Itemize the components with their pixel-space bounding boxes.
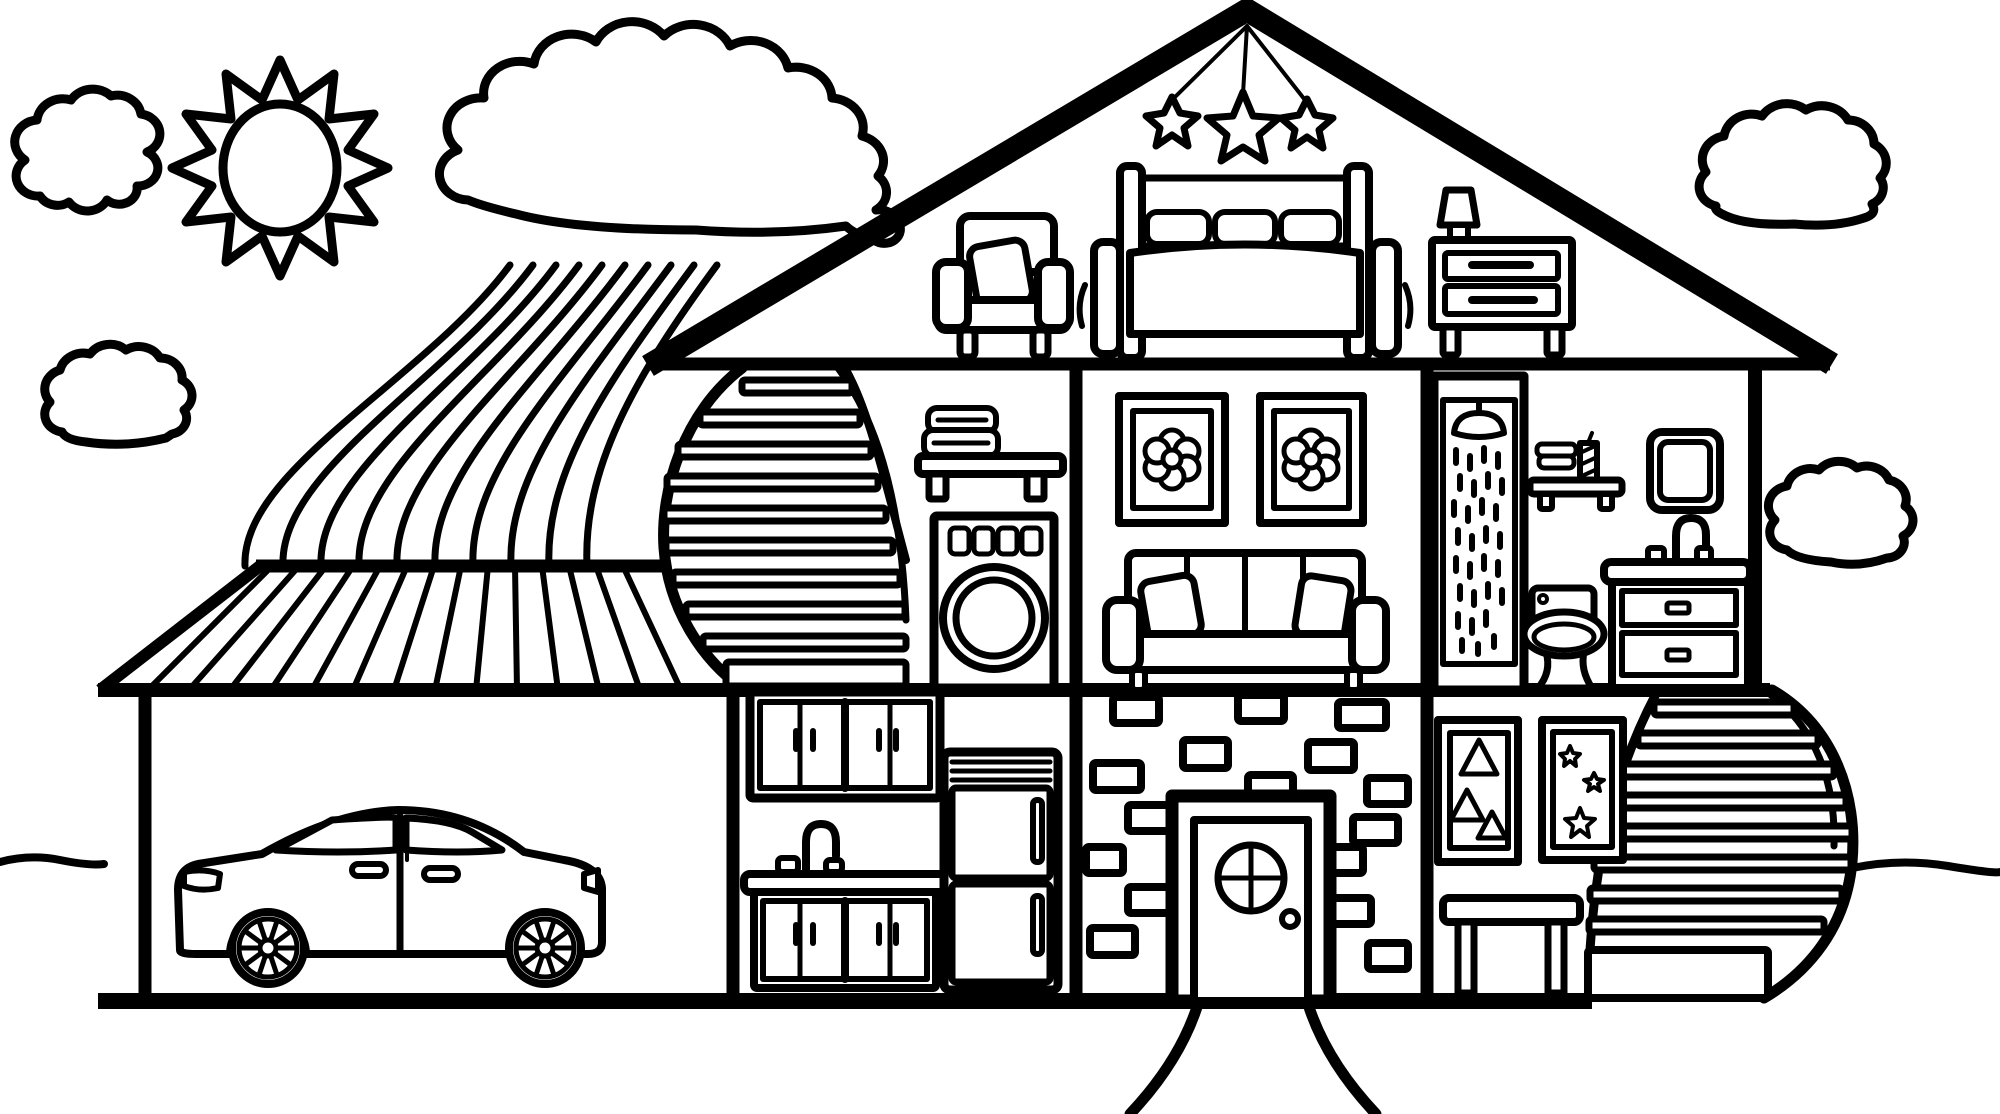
toilet — [1524, 588, 1604, 688]
flower-icon — [1145, 430, 1199, 489]
star-icon — [1146, 97, 1198, 146]
kitchen-sink — [744, 824, 946, 892]
star-icon — [1207, 92, 1279, 161]
car-wheel — [509, 912, 581, 984]
living-room — [1106, 396, 1386, 690]
armchair — [936, 216, 1070, 357]
bed — [1080, 166, 1411, 358]
cloud-icon-small-left — [15, 89, 160, 211]
side-table — [1443, 898, 1580, 993]
nightstand — [1432, 190, 1572, 355]
car-taillight — [584, 870, 598, 892]
garage-roof — [100, 566, 742, 690]
garage — [178, 810, 602, 984]
entry-room — [1086, 695, 1408, 1001]
flower-picture-1 — [1119, 396, 1225, 523]
ground-line-right — [1852, 862, 2000, 872]
walkway — [1130, 1004, 1376, 1114]
laundry-room — [918, 408, 1063, 688]
staircase-left — [664, 368, 910, 688]
attic-bedroom — [936, 26, 1572, 358]
kitchen — [744, 692, 1058, 990]
bed-pillow — [1281, 212, 1339, 244]
car — [178, 810, 602, 984]
laundry-shelf — [918, 408, 1063, 499]
triangle-picture — [1438, 720, 1518, 862]
cloud-icon-mid-right — [1768, 461, 1913, 564]
rainbow — [245, 265, 717, 566]
bathroom — [1434, 376, 1750, 690]
flower-icon — [1284, 430, 1338, 489]
shower-head-icon — [1454, 413, 1504, 437]
coloring-page — [0, 0, 2000, 1114]
car-headlight — [184, 870, 220, 889]
car-door-handle — [424, 868, 458, 880]
mirror — [1650, 432, 1720, 510]
bed-mattress — [1130, 245, 1360, 335]
staircase-right — [1588, 690, 1853, 998]
flower-picture-2 — [1260, 396, 1363, 523]
car-door-handle — [352, 864, 386, 876]
cloud-icon-mid-left — [45, 344, 192, 444]
lower-cabinets — [754, 892, 936, 988]
sun-icon — [172, 60, 388, 276]
bed-pillow — [1215, 212, 1275, 244]
washing-machine — [934, 516, 1054, 688]
coloring-page-canvas — [0, 0, 2000, 1114]
ground-line-left — [0, 857, 104, 864]
lamp-icon — [1440, 190, 1477, 225]
refrigerator — [944, 752, 1058, 990]
shower — [1434, 376, 1524, 690]
vanity-sink — [1604, 518, 1750, 688]
sofa — [1106, 553, 1386, 690]
star-icon — [1281, 99, 1333, 148]
bathroom-shelf — [1530, 433, 1622, 509]
car-wheel — [232, 912, 304, 984]
upper-cabinets — [750, 692, 940, 798]
front-door — [1172, 796, 1330, 1001]
star-picture — [1542, 720, 1623, 860]
door-knob — [1282, 911, 1298, 927]
cloud-icon-top-right — [1699, 104, 1886, 226]
bed-pillow — [1147, 212, 1209, 244]
cloud-icon-large — [439, 22, 900, 244]
